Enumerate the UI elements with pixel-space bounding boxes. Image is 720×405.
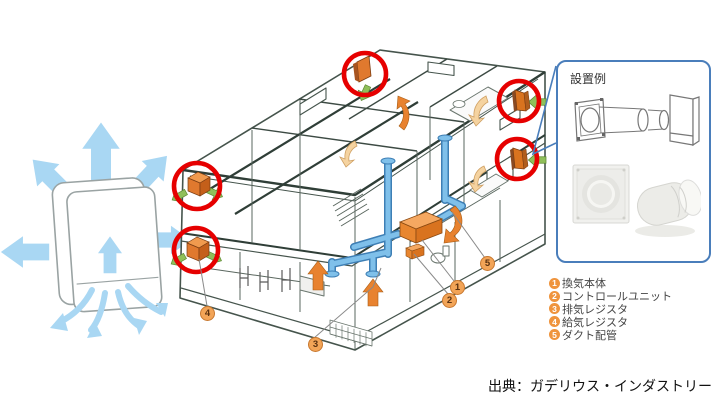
legend-item: 5 ダクト配管 — [549, 328, 672, 341]
ventilation-system-diagram: 設置例 — [0, 0, 720, 405]
legend-number-badge: 1 — [549, 278, 560, 289]
installation-example-panel: 設置例 — [556, 60, 711, 263]
legend-number-badge: 4 — [549, 316, 560, 327]
duct-parts-photo — [567, 151, 701, 247]
legend-number-badge: 2 — [549, 291, 560, 302]
callout-number-5: 5 — [480, 256, 495, 271]
source-credit: 出典：ガデリウス・インダストリー — [488, 376, 712, 396]
heat-exchanger-unit-illustration — [1, 123, 191, 339]
legend: 1 換気本体 2 コントロールユニット 3 排気レジスタ 4 給気レジスタ 5 … — [549, 277, 672, 341]
legend-number-badge: 3 — [549, 303, 560, 314]
panel-title: 設置例 — [570, 70, 709, 87]
callout-number-3: 3 — [308, 337, 323, 352]
legend-item-label: ダクト配管 — [562, 327, 617, 343]
callout-number-4: 4 — [200, 306, 215, 321]
legend-number-badge: 5 — [549, 329, 560, 340]
callout-number-2: 2 — [442, 293, 457, 308]
duct-assembly-line-drawing — [567, 89, 701, 151]
